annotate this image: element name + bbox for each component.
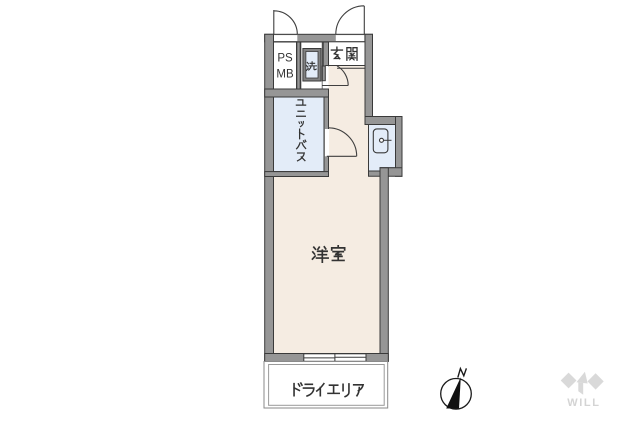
svg-text:WILL: WILL — [567, 397, 600, 409]
svg-text:MB: MB — [276, 69, 294, 81]
svg-text:PS: PS — [277, 53, 293, 65]
